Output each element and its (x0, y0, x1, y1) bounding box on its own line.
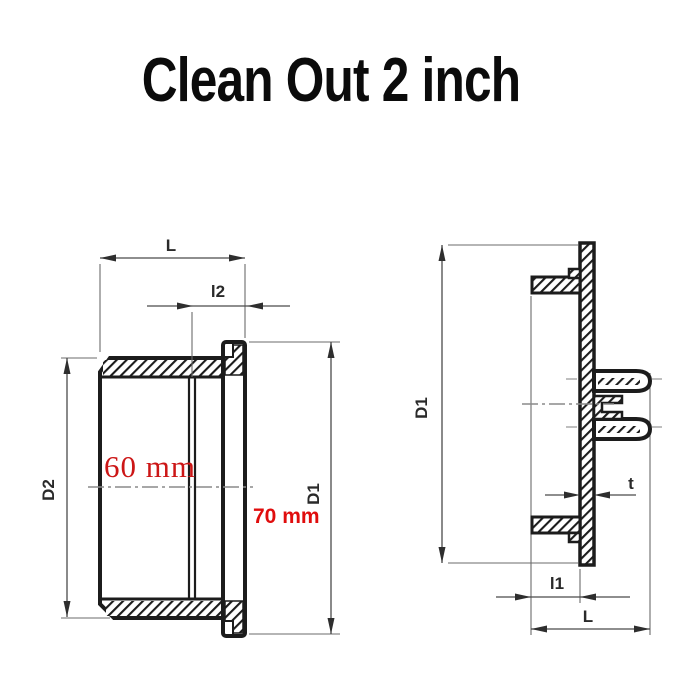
dimension-L-right: L (531, 607, 650, 633)
dim-label-wall-thickness: t (628, 474, 634, 493)
left-top-wall-hatch (103, 360, 223, 376)
left-view-drawing: L l2 D2 (39, 236, 340, 636)
right-lower-prong-hatch (598, 426, 640, 433)
dim-label-length-right: L (583, 607, 593, 626)
dim-label-hub-depth: l1 (550, 574, 564, 593)
dim-label-body-diameter: D2 (39, 479, 58, 501)
left-body-outline (100, 358, 223, 618)
left-bottom-wall-hatch (106, 601, 223, 616)
right-top-rim (532, 277, 580, 293)
dim-label-flange-diameter-left: D1 (304, 483, 323, 505)
right-top-rim-step (569, 269, 580, 278)
dimension-l1-right: l1 (496, 574, 630, 601)
left-flange-outline (223, 342, 245, 636)
right-center-boss (594, 396, 622, 419)
dim-label-flange-diameter-right: D1 (412, 397, 431, 419)
right-bottom-rim (532, 517, 580, 533)
right-bottom-rim-step (569, 533, 580, 542)
inner-diameter-annotation: 60 mm (104, 449, 196, 484)
technical-drawing-canvas: L l2 D2 (0, 0, 700, 700)
dim-label-length-left: L (166, 236, 176, 255)
outer-diameter-annotation: 70 mm (253, 505, 320, 528)
dimension-D1-left: D1 (249, 342, 340, 634)
dim-label-socket-depth: l2 (211, 282, 225, 301)
right-upper-prong-hatch (598, 378, 640, 385)
product-drawing-image: Clean Out 2 inch (0, 0, 700, 700)
right-view-drawing: D1 t l1 L (412, 243, 662, 635)
